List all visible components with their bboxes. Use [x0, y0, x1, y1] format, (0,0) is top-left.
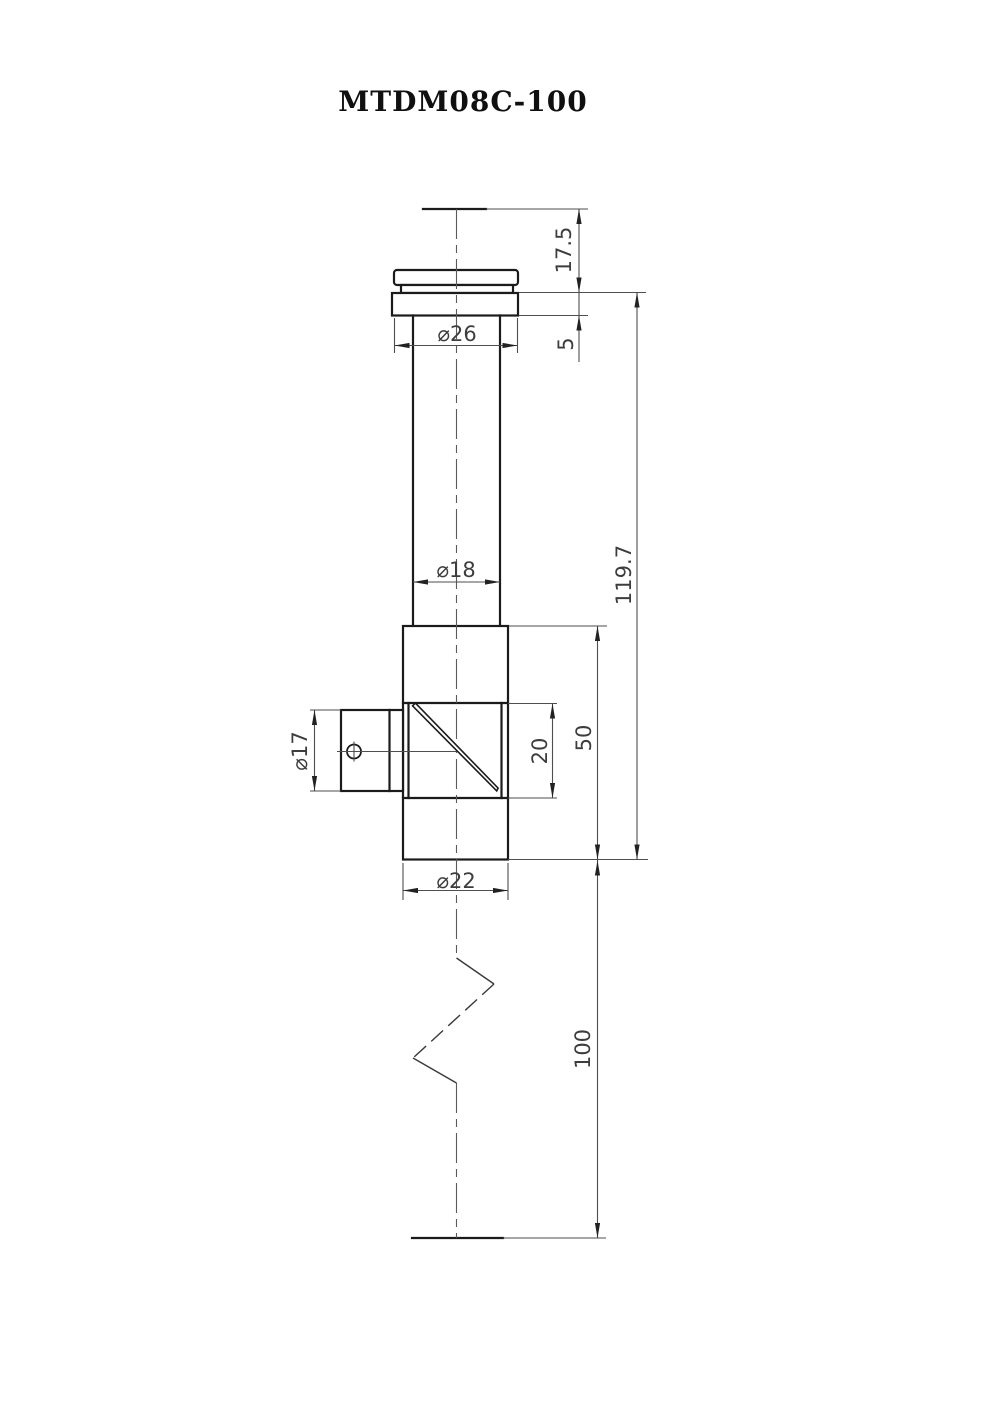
drawing-sheet: MTDM08C-100 ⌀26 ⌀18 ⌀22 17.5 5 119.7 50 … [0, 0, 992, 1403]
arrow-17-bottom [312, 776, 317, 791]
annotations: MTDM08C-100 ⌀26 ⌀18 ⌀22 17.5 5 119.7 50 … [288, 85, 636, 1069]
arrow-119-7-bottom [634, 845, 639, 860]
arrow-18-right [485, 579, 500, 584]
dim-label-collar-height: 5 [554, 337, 578, 350]
arrow-100-bottom [595, 1223, 600, 1238]
arrow-22-right [493, 888, 508, 893]
break-zigzag-upper [457, 958, 495, 984]
arrow-26-right [503, 343, 518, 348]
dim-label-cap-diameter: ⌀26 [437, 322, 476, 346]
break-zigzag-middle [413, 984, 494, 1058]
arrow-17-top [312, 710, 317, 725]
dim-label-body-diameter: ⌀22 [436, 869, 475, 893]
dim-label-rod-length: 100 [571, 1029, 595, 1069]
dim-label-body-length: 50 [572, 725, 596, 752]
arrow-17-5-top [576, 209, 581, 224]
dim-label-tip-length: 17.5 [552, 227, 576, 274]
cube-body-shape [403, 626, 508, 860]
dim-label-overall-length: 119.7 [612, 545, 636, 605]
drawing-title: MTDM08C-100 [338, 85, 587, 118]
collar-flange-shape [392, 293, 518, 316]
arrow-20-top [550, 704, 555, 719]
dim-label-tube-diameter: ⌀18 [436, 558, 475, 582]
dim-label-port-diameter: ⌀17 [288, 731, 312, 770]
dim-label-window-height: 20 [528, 738, 552, 765]
arrow-22-left [403, 888, 418, 893]
arrow-18-left [413, 579, 428, 584]
arrow-50-top [595, 626, 600, 641]
break-symbol [413, 958, 494, 1083]
arrow-50-bottom [595, 845, 600, 860]
arrow-100-top [595, 861, 600, 876]
arrow-20-bottom [550, 783, 555, 798]
arrow-26-left [395, 343, 410, 348]
break-zigzag-lower [413, 1058, 457, 1083]
technical-drawing: MTDM08C-100 ⌀26 ⌀18 ⌀22 17.5 5 119.7 50 … [0, 0, 992, 1403]
arrow-17-5-bottom [576, 278, 581, 293]
arrow-5-bottom [576, 316, 581, 331]
arrow-119-7-top [634, 293, 639, 308]
